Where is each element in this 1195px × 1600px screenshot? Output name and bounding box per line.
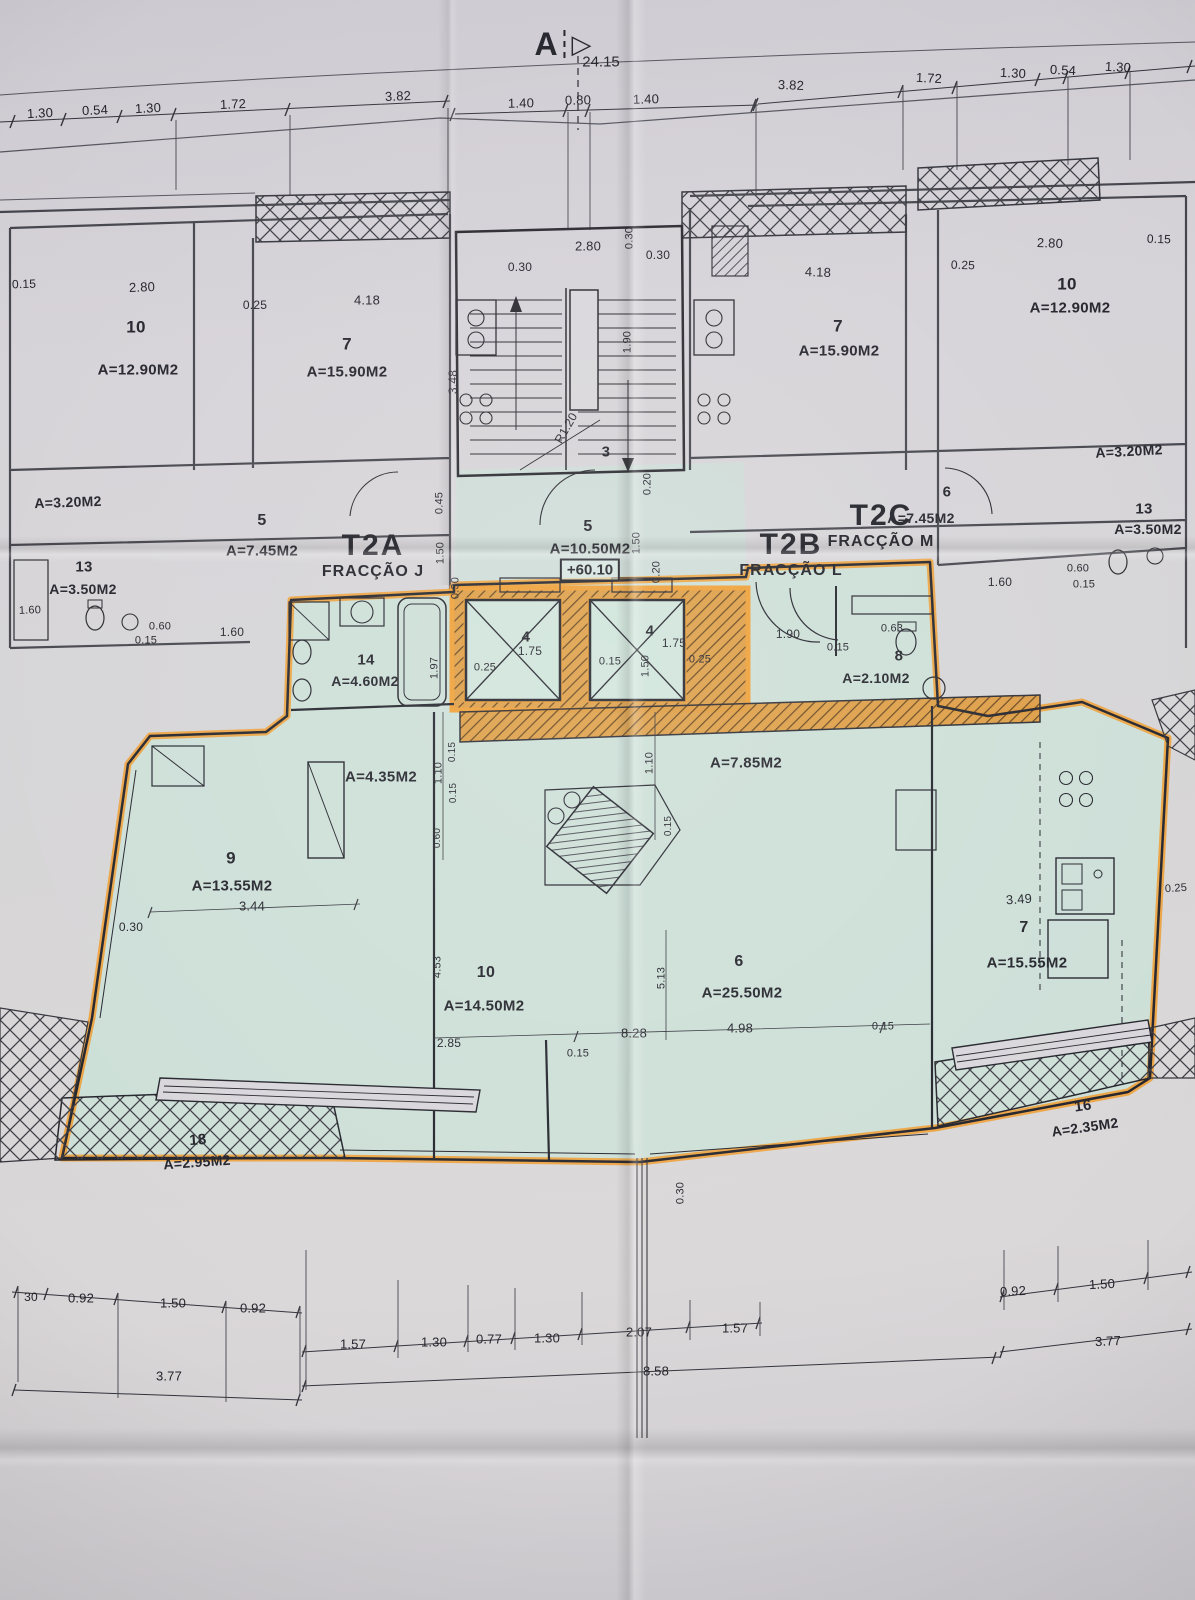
dimension-label: 0.20 <box>652 561 663 583</box>
dimension-label: 1.30 <box>27 106 54 120</box>
dimension-label: 1.60 <box>220 626 244 638</box>
room-area-label: A=2.95M2 <box>163 1153 231 1172</box>
dimension-label: 1.60 <box>19 605 42 617</box>
room-number-label: 10 <box>477 965 495 981</box>
room-number-label: 10 <box>126 319 146 336</box>
paper-fold-vertical-upper <box>438 0 458 585</box>
room-area-label: A=4.35M2 <box>345 770 417 785</box>
dimension-label: 0.15 <box>1147 233 1172 246</box>
room-number-label: 8 <box>895 649 904 664</box>
dimension-label: 0.92 <box>240 1302 266 1315</box>
dimension-label: 0.15 <box>12 278 37 291</box>
dimension-label: 1.10 <box>645 752 656 774</box>
dimension-label: 0.15 <box>449 783 459 803</box>
dimension-label: 0.15 <box>567 1049 589 1060</box>
dimension-label: 5.13 <box>657 967 668 989</box>
room-area-label: A=3.50M2 <box>1114 522 1181 536</box>
paper-fold-horizontal <box>0 536 1195 562</box>
dimension-label: 0.63 <box>881 624 903 635</box>
dimension-label: 0.54 <box>1050 63 1077 77</box>
dimension-label: 1.97 <box>430 657 441 679</box>
dimension-label: 1.50 <box>1089 1277 1116 1291</box>
room-number-label: 4 <box>522 630 531 645</box>
room-area-label: A=15.90M2 <box>799 344 880 359</box>
dimension-label: 1.72 <box>916 71 943 85</box>
room-number-label: 7 <box>342 336 352 353</box>
unit-code: T2C <box>828 501 935 531</box>
dimension-label: 0.30 <box>119 921 143 933</box>
label-layer: 1.300.541.301.723.821.400.801.403.821.72… <box>0 0 1195 1600</box>
section-letter: A <box>534 28 557 60</box>
dimension-label: R1.20 <box>553 411 580 446</box>
dimension-label: 0.25 <box>1165 883 1188 896</box>
dimension-label: 1.72 <box>220 97 247 111</box>
dimension-label: 1.30 <box>534 1332 560 1345</box>
dimension-label: 0.92 <box>1000 1284 1027 1298</box>
dimension-label: 2.80 <box>575 240 601 253</box>
room-area-label: A=25.50M2 <box>702 986 783 1001</box>
room-number-label: 13 <box>1135 502 1152 517</box>
dimension-label: 1.60 <box>988 576 1012 588</box>
overall-dimension: 24.15 <box>582 54 620 71</box>
dimension-label: 1.90 <box>776 628 800 640</box>
dimension-label: 0.15 <box>872 1022 894 1033</box>
dimension-label: 1.57 <box>340 1338 366 1351</box>
room-area-label: A=13.55M2 <box>192 879 273 894</box>
dimension-label: 4.53 <box>433 956 444 978</box>
dimension-label: 0.80 <box>565 93 591 106</box>
dimension-label: 3.77 <box>1095 1334 1122 1348</box>
room-area-label: A=3.50M2 <box>49 582 116 596</box>
dimension-label: 0.30 <box>646 249 670 261</box>
room-area-label: A=15.55M2 <box>987 956 1068 971</box>
dimension-label: 3.82 <box>778 78 805 92</box>
paper-fold-vertical <box>616 0 646 1600</box>
dimension-label: 3.82 <box>385 89 412 103</box>
dimension-label: 4.18 <box>354 294 380 307</box>
dimension-label: 0.30 <box>676 1182 687 1204</box>
dimension-label: 0.15 <box>448 742 458 762</box>
room-number-label: 6 <box>943 485 952 500</box>
room-area-label: A=2.35M2 <box>1051 1115 1120 1138</box>
dimension-label: 1.75 <box>518 645 542 657</box>
dimension-label: 0.60 <box>149 622 171 633</box>
dimension-label: 8.58 <box>643 1365 669 1378</box>
dimension-label: 1.75 <box>662 637 686 649</box>
room-area-label: A=15.90M2 <box>307 365 388 380</box>
unit-fraction: FRACÇÃO L <box>739 562 842 580</box>
dimension-label: 0.77 <box>476 1333 502 1346</box>
room-area-label: A=3.20M2 <box>1095 442 1163 460</box>
room-area-label: A=7.85M2 <box>710 756 782 771</box>
dimension-label: 2.85 <box>437 1037 461 1049</box>
dimension-label: 0.92 <box>68 1292 94 1305</box>
dimension-label: 0.60 <box>1067 564 1089 575</box>
dimension-label: 1.57 <box>722 1322 748 1335</box>
dimension-label: 4.18 <box>805 265 832 279</box>
dimension-label: 30 <box>24 1291 38 1303</box>
room-number-label: 9 <box>226 850 236 867</box>
room-number-label: 18 <box>189 1132 207 1148</box>
section-line-icon <box>564 30 566 58</box>
dimension-label: 4.98 <box>727 1022 753 1035</box>
room-number-label: 7 <box>1019 920 1028 936</box>
paper-fold-bottom <box>0 1428 1195 1468</box>
room-number-label: 5 <box>257 513 266 529</box>
room-area-label: A=2.10M2 <box>842 671 909 685</box>
room-area-label: A=12.90M2 <box>1030 301 1111 316</box>
dimension-label: 0.15 <box>1073 580 1095 591</box>
room-number-label: 4 <box>646 624 655 639</box>
floorplan-photo: 1.300.541.301.723.821.400.801.403.821.72… <box>0 0 1195 1600</box>
dimension-label: 0.25 <box>689 655 711 666</box>
dimension-label: 1.50 <box>160 1297 186 1310</box>
unit-fraction: FRACÇÃO J <box>322 563 424 581</box>
dimension-label: 3.49 <box>1006 892 1033 907</box>
dimension-label: 1.10 <box>434 762 445 784</box>
room-area-label: A=14.50M2 <box>444 999 525 1014</box>
dimension-label: 2.80 <box>1037 236 1064 250</box>
dimension-label: 1.40 <box>508 96 534 109</box>
room-area-label: A=12.90M2 <box>98 363 179 378</box>
room-number-label: 6 <box>734 954 743 970</box>
dimension-label: 0.25 <box>243 299 267 311</box>
dimension-label: 1.30 <box>1105 60 1132 74</box>
dimension-label: 0.25 <box>951 259 976 272</box>
dimension-label: 1.30 <box>135 101 162 115</box>
room-number-label: 14 <box>357 653 374 668</box>
room-number-label: 3 <box>602 445 611 460</box>
room-area-label: A=4.60M2 <box>331 674 398 688</box>
dimension-label: 0.54 <box>82 103 109 117</box>
dimension-label: 3.77 <box>156 1370 182 1383</box>
room-number-label: 7 <box>833 318 843 335</box>
dimension-label: 1.30 <box>421 1336 447 1349</box>
dimension-label: 3.44 <box>239 900 265 913</box>
dimension-label: 0.25 <box>474 663 496 674</box>
dimension-label: 0.15 <box>664 816 674 836</box>
dimension-label: 0.60 <box>433 828 443 848</box>
room-area-label: A=3.20M2 <box>34 494 102 510</box>
dimension-label: 2.80 <box>129 280 156 294</box>
room-number-label: 10 <box>1057 276 1077 293</box>
dimension-label: 0.15 <box>827 643 849 654</box>
dimension-label: 1.30 <box>1000 66 1027 80</box>
dimension-label: 0.15 <box>135 636 157 647</box>
dimension-label: 0.30 <box>508 261 532 273</box>
room-number-label: 16 <box>1073 1097 1092 1114</box>
room-number-label: 5 <box>583 519 592 535</box>
